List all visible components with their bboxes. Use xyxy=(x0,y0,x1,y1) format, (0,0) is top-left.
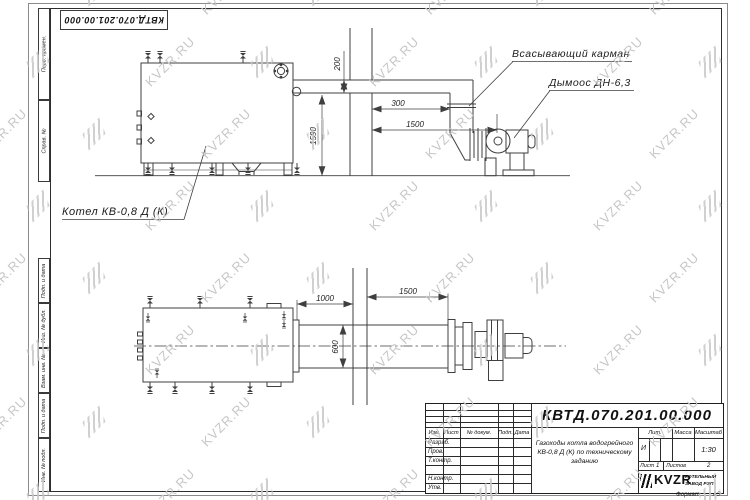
margin-cell-sprav-no: Справ. № xyxy=(38,100,50,182)
row-tkontr: Т.контр. xyxy=(428,458,452,464)
margin-cell-perv-primen: Перв. примен. xyxy=(38,8,50,100)
row-prov: Пров. xyxy=(428,449,444,455)
lit-header: Лит. xyxy=(638,430,672,436)
sheets-value: 2 xyxy=(707,463,710,469)
company-line1: КОТЕЛЬНЫЙ xyxy=(685,475,716,480)
margin-cell-inv-podl: Инв. № подл. xyxy=(38,438,50,492)
corner-stamp: КВТД.070.201.00.000 xyxy=(60,10,168,30)
row-utv: Утв. xyxy=(428,485,442,491)
sheet-label: Лист xyxy=(640,463,654,469)
drawing-sheet: КВТД.070.201.00.000 Перв. примен. Справ.… xyxy=(0,0,750,500)
title-designation: КВТД.070.201.00.000 xyxy=(531,407,723,424)
kvzr-logo-icon xyxy=(640,474,652,488)
col-data: Дата xyxy=(513,430,531,436)
title-description-line2: КВ-0,8 Д (К) по техническому xyxy=(533,449,636,456)
row-nkontr: Н.контр. xyxy=(428,476,453,482)
col-list: Лист xyxy=(443,430,460,436)
title-description-line3: заданию xyxy=(533,458,636,465)
sheets-label: Листов xyxy=(666,463,686,469)
row-razrab: Разраб. xyxy=(428,440,450,446)
company-line2: ЗАВОД РЭП xyxy=(685,482,713,487)
col-ndocum: № докум. xyxy=(460,430,498,436)
format-note: ФорматА3 xyxy=(676,492,720,498)
margin-cell-inv-dubl: Инв. № дубл. xyxy=(38,303,50,348)
sheet-value: 1 xyxy=(656,463,659,469)
col-podp: Подп. xyxy=(498,430,513,436)
margin-cell-podp-data-2: Подп. и дата xyxy=(38,393,50,438)
format-value: А3 xyxy=(713,492,720,498)
corner-stamp-text: КВТД.070.201.00.000 xyxy=(64,15,164,25)
scale-header: Масштаб xyxy=(694,430,723,436)
title-block: КВТД.070.201.00.000 Газоходы котла водог… xyxy=(425,403,724,494)
margin-cell-vzam-inv: Взам. инв. № xyxy=(38,348,50,393)
title-description-line1: Газоходы котла водогрейного xyxy=(533,440,636,447)
col-izm: Изм. xyxy=(426,430,443,436)
scale-value: 1:30 xyxy=(694,445,723,454)
lit-value: И xyxy=(638,445,649,452)
mass-header: Масса xyxy=(672,430,694,436)
margin-cell-podp-data-1: Подп. и дата xyxy=(38,258,50,303)
